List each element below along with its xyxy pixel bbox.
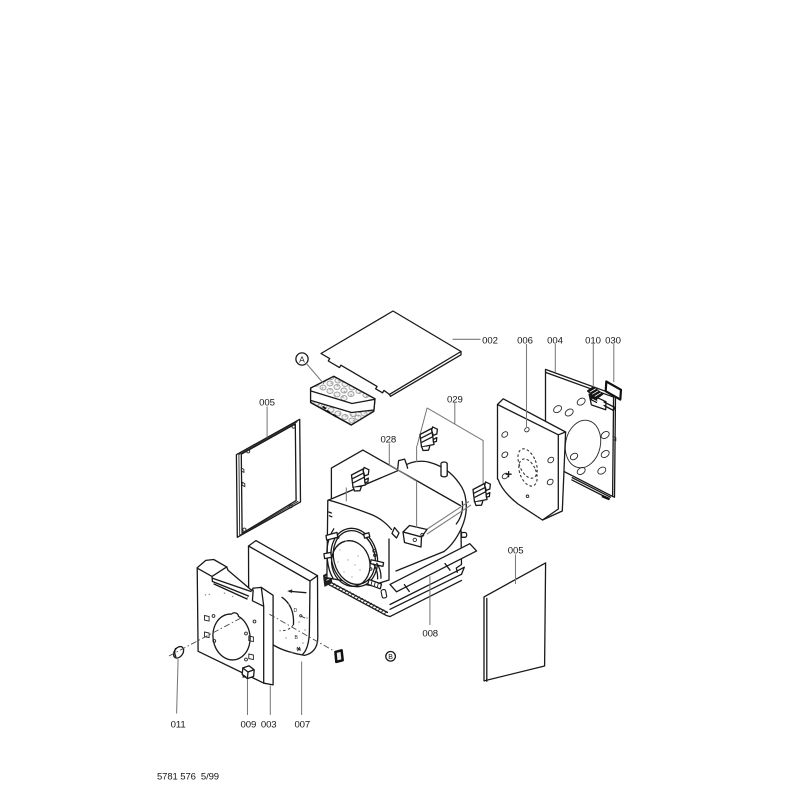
svg-text:005: 005 [259, 398, 275, 409]
svg-text:028: 028 [380, 435, 396, 446]
svg-text:A: A [299, 354, 305, 364]
svg-text:002: 002 [482, 335, 498, 346]
svg-text:029: 029 [447, 394, 463, 405]
svg-text:010: 010 [585, 335, 601, 346]
svg-text:005: 005 [508, 545, 524, 556]
svg-text:008: 008 [422, 628, 438, 639]
svg-text:D: D [294, 608, 298, 614]
svg-text:003: 003 [261, 720, 277, 731]
svg-text:009: 009 [241, 720, 257, 731]
svg-text:5781 576 5/99: 5781 576 5/99 [157, 771, 219, 782]
svg-text:007: 007 [294, 720, 310, 731]
svg-text:B: B [388, 654, 393, 661]
svg-text:011: 011 [171, 720, 186, 731]
svg-text:004: 004 [547, 335, 563, 346]
svg-text:006: 006 [517, 335, 533, 346]
svg-text:030: 030 [605, 335, 621, 346]
